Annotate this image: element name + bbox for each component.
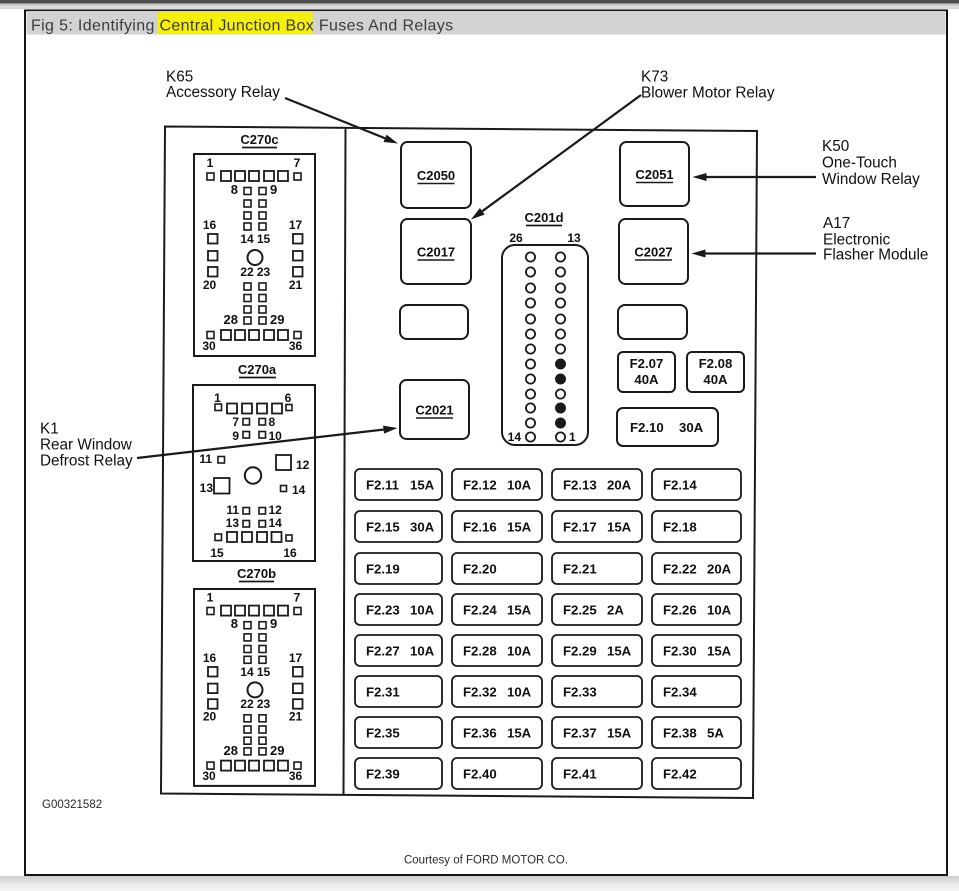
svg-text:15A: 15A [607, 644, 632, 659]
svg-text:F2.10: F2.10 [630, 420, 664, 435]
svg-text:F2.23: F2.23 [366, 603, 400, 618]
svg-text:9: 9 [270, 616, 277, 631]
svg-text:F2.19: F2.19 [366, 562, 400, 577]
svg-text:8: 8 [231, 182, 238, 197]
svg-text:29: 29 [270, 312, 284, 327]
svg-text:10A: 10A [410, 644, 435, 659]
svg-text:29: 29 [270, 743, 284, 758]
svg-text:30A: 30A [679, 420, 704, 435]
svg-text:10A: 10A [507, 478, 532, 493]
svg-text:30: 30 [202, 339, 216, 353]
svg-text:1: 1 [214, 391, 221, 405]
svg-text:40A: 40A [634, 372, 659, 387]
svg-text:30: 30 [202, 769, 216, 783]
svg-text:11: 11 [226, 503, 239, 517]
svg-text:F2.32: F2.32 [463, 685, 497, 700]
svg-text:14: 14 [508, 430, 522, 444]
svg-text:12: 12 [296, 458, 310, 472]
svg-text:9: 9 [232, 429, 239, 443]
svg-text:F2.34: F2.34 [663, 685, 697, 700]
svg-text:15A: 15A [707, 644, 732, 659]
svg-text:F2.41: F2.41 [563, 767, 597, 782]
svg-text:Blower Motor Relay: Blower Motor Relay [641, 85, 775, 102]
svg-text:K50: K50 [822, 138, 849, 155]
svg-text:15A: 15A [507, 726, 532, 741]
svg-text:14: 14 [240, 665, 254, 679]
svg-text:13: 13 [226, 516, 240, 530]
svg-text:F2.27: F2.27 [366, 644, 400, 659]
svg-text:10A: 10A [507, 644, 532, 659]
svg-text:20A: 20A [607, 478, 632, 493]
svg-text:15: 15 [210, 546, 224, 560]
svg-text:12: 12 [269, 503, 283, 517]
svg-text:F2.15: F2.15 [366, 520, 400, 535]
svg-text:C2050: C2050 [417, 168, 455, 183]
svg-text:17: 17 [289, 651, 303, 665]
svg-text:1: 1 [207, 156, 214, 170]
svg-text:F2.33: F2.33 [563, 685, 597, 700]
svg-text:C201d: C201d [524, 210, 563, 225]
svg-text:A17: A17 [823, 215, 850, 232]
svg-text:16: 16 [203, 651, 217, 665]
svg-text:40A: 40A [703, 372, 728, 387]
svg-text:K1: K1 [40, 421, 59, 438]
svg-text:15A: 15A [507, 520, 532, 535]
svg-text:F2.07: F2.07 [630, 356, 664, 371]
svg-text:F2.16: F2.16 [463, 520, 497, 535]
svg-text:1: 1 [207, 591, 214, 605]
svg-text:Flasher Module: Flasher Module [823, 247, 928, 264]
svg-text:20: 20 [203, 278, 217, 292]
svg-text:8: 8 [231, 616, 238, 631]
svg-text:22: 22 [240, 265, 254, 279]
svg-text:C2027: C2027 [634, 245, 672, 260]
svg-text:2A: 2A [607, 603, 624, 618]
svg-text:16: 16 [203, 218, 217, 232]
svg-text:F2.11: F2.11 [366, 478, 399, 493]
svg-text:Courtesy of FORD MOTOR CO.: Courtesy of FORD MOTOR CO. [404, 855, 568, 867]
svg-text:F2.39: F2.39 [366, 767, 400, 782]
svg-text:14: 14 [292, 483, 306, 497]
svg-text:F2.42: F2.42 [663, 767, 697, 782]
svg-text:15: 15 [257, 232, 271, 246]
svg-text:7: 7 [294, 591, 301, 605]
svg-text:C270c: C270c [240, 132, 278, 147]
svg-text:F2.29: F2.29 [563, 644, 597, 659]
svg-text:36: 36 [289, 339, 303, 353]
svg-text:17: 17 [289, 218, 303, 232]
svg-text:F2.40: F2.40 [463, 767, 497, 782]
svg-text:F2.28: F2.28 [463, 644, 497, 659]
svg-text:C2017: C2017 [417, 245, 455, 260]
svg-text:C270b: C270b [237, 566, 276, 581]
svg-text:28: 28 [224, 312, 238, 327]
svg-text:1: 1 [569, 430, 576, 444]
svg-text:F2.36: F2.36 [463, 726, 497, 741]
svg-text:7: 7 [232, 415, 239, 429]
svg-text:21: 21 [289, 278, 303, 292]
svg-text:One-Touch: One-Touch [822, 155, 897, 172]
svg-text:Accessory Relay: Accessory Relay [166, 84, 280, 101]
svg-text:8: 8 [269, 415, 276, 429]
svg-text:23: 23 [257, 697, 271, 711]
svg-text:C270a: C270a [238, 362, 277, 377]
svg-text:14: 14 [240, 232, 254, 246]
svg-text:20A: 20A [707, 562, 732, 577]
svg-text:Fig 5: Identifying Central Jun: Fig 5: Identifying Central Junction Box … [31, 18, 453, 35]
svg-text:15A: 15A [607, 726, 632, 741]
svg-text:10A: 10A [507, 685, 532, 700]
svg-text:26: 26 [509, 231, 523, 245]
svg-text:F2.20: F2.20 [463, 562, 497, 577]
svg-text:7: 7 [294, 156, 301, 170]
svg-text:21: 21 [289, 710, 303, 724]
svg-text:F2.37: F2.37 [563, 726, 597, 741]
svg-text:C2021: C2021 [415, 403, 453, 418]
svg-text:K73: K73 [641, 69, 668, 86]
svg-text:F2.31: F2.31 [366, 685, 400, 700]
svg-text:11: 11 [199, 452, 212, 466]
svg-text:20: 20 [203, 710, 217, 724]
svg-text:30A: 30A [410, 520, 435, 535]
svg-text:F2.18: F2.18 [663, 520, 697, 535]
svg-text:F2.26: F2.26 [663, 603, 697, 618]
svg-text:Defrost Relay: Defrost Relay [40, 453, 133, 470]
svg-text:F2.17: F2.17 [563, 520, 597, 535]
svg-text:15A: 15A [607, 520, 632, 535]
svg-text:23: 23 [257, 265, 271, 279]
svg-text:6: 6 [285, 391, 292, 405]
svg-text:15: 15 [257, 665, 271, 679]
svg-text:C2051: C2051 [635, 167, 673, 182]
svg-text:10A: 10A [707, 603, 732, 618]
svg-text:36: 36 [289, 769, 303, 783]
svg-text:F2.30: F2.30 [663, 644, 697, 659]
svg-text:F2.38: F2.38 [663, 726, 697, 741]
svg-text:5A: 5A [707, 726, 724, 741]
svg-text:F2.12: F2.12 [463, 478, 497, 493]
svg-text:F2.35: F2.35 [366, 726, 400, 741]
svg-text:13: 13 [567, 231, 581, 245]
svg-text:F2.25: F2.25 [563, 603, 597, 618]
svg-text:F2.21: F2.21 [563, 562, 597, 577]
svg-text:F2.24: F2.24 [463, 603, 497, 618]
svg-text:13: 13 [200, 481, 214, 495]
svg-text:F2.22: F2.22 [663, 562, 697, 577]
svg-text:28: 28 [224, 743, 238, 758]
svg-text:Rear Window: Rear Window [40, 437, 133, 454]
svg-text:14: 14 [269, 516, 283, 530]
svg-text:F2.08: F2.08 [699, 356, 733, 371]
svg-text:G00321582: G00321582 [42, 799, 102, 811]
svg-text:Window Relay: Window Relay [822, 171, 920, 188]
svg-text:F2.14: F2.14 [663, 478, 697, 493]
svg-text:16: 16 [283, 546, 297, 560]
svg-text:10A: 10A [410, 603, 435, 618]
svg-text:15A: 15A [410, 478, 435, 493]
svg-text:15A: 15A [507, 603, 532, 618]
svg-text:22: 22 [240, 697, 254, 711]
svg-text:F2.13: F2.13 [563, 478, 597, 493]
svg-text:9: 9 [270, 182, 277, 197]
svg-text:K65: K65 [166, 69, 193, 86]
